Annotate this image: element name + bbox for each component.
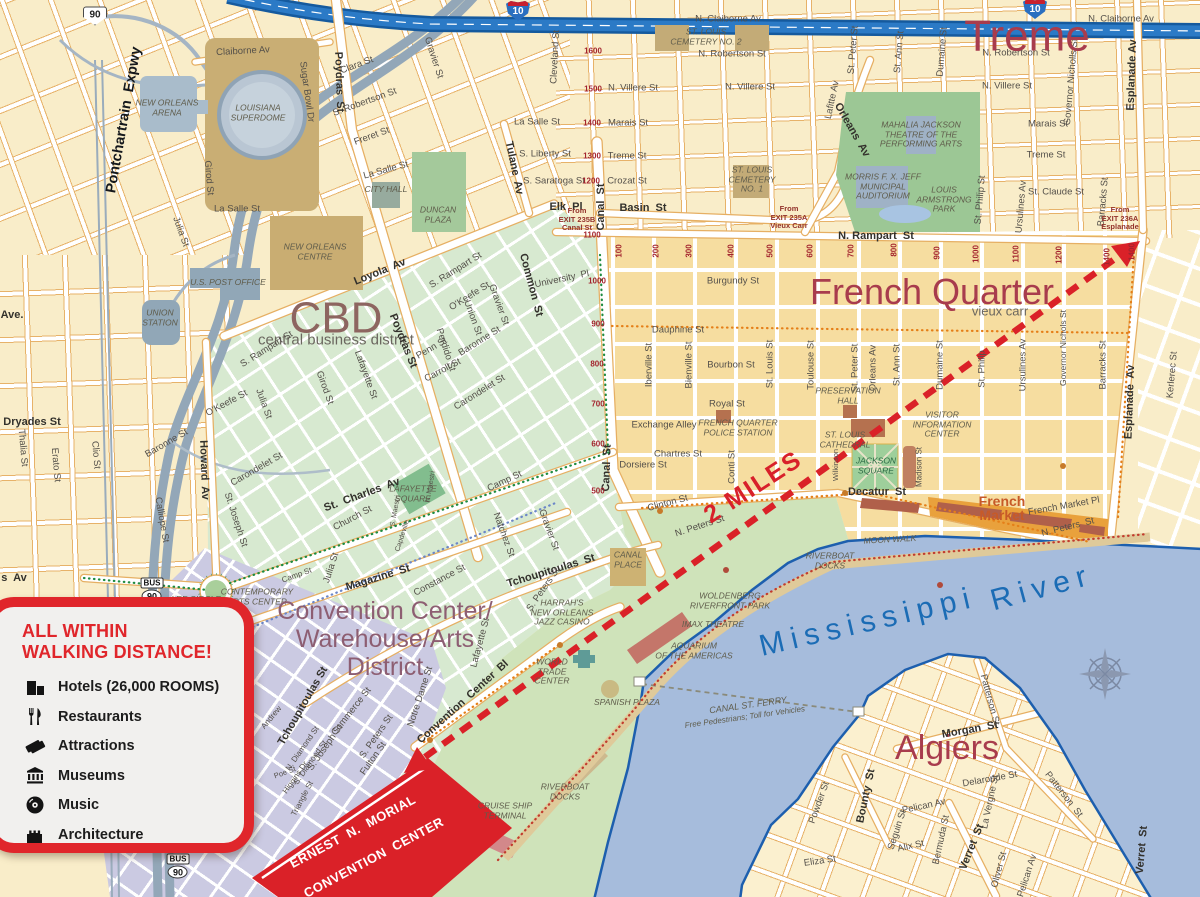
new-orleans-tourist-map: Pontchartrain ExpwyClaiborne AvNEW ORLEA… (0, 0, 1200, 897)
world-trade-center-block (573, 650, 595, 668)
legend-title-line1: ALL WITHIN (22, 621, 128, 641)
cemetery2-block (655, 25, 689, 51)
union-station-block (142, 300, 180, 345)
legend-item-label: Museums (58, 768, 125, 784)
legend-item-hotels-26-000-rooms: Hotels (26,000 ROOMS) (22, 672, 234, 702)
cemetery1-block (733, 165, 769, 198)
lafayette-square-block (392, 464, 445, 514)
legend-item-attractions: Attractions (22, 731, 234, 761)
police-station-block (716, 410, 731, 423)
city-hall-block (372, 182, 400, 208)
legend-item-architecture: Architecture (22, 820, 234, 850)
spanish-plaza-circle (601, 680, 619, 698)
legend-item-label: Restaurants (58, 709, 142, 725)
music-icon (22, 794, 48, 816)
ferry-dock-icon (853, 707, 864, 716)
legend-panel: ALL WITHIN WALKING DISTANCE! Hotels (26,… (0, 597, 254, 853)
mississippi-river-water (505, 536, 1200, 897)
legend-items: Hotels (26,000 ROOMS)RestaurantsAttracti… (22, 672, 234, 849)
architecture-icon (22, 824, 48, 846)
duncan-plaza-block (412, 152, 466, 232)
legend-item-restaurants: Restaurants (22, 702, 234, 732)
legend-title-line2: WALKING DISTANCE! (22, 642, 212, 662)
preservation-hall-block (843, 405, 857, 418)
interstate-10-highway (228, 0, 1200, 31)
legend-item-music: Music (22, 790, 234, 820)
canal-place-block (610, 548, 646, 586)
legend-item-label: Music (58, 797, 99, 813)
mahalia-theatre-block (906, 116, 936, 154)
legend-title: ALL WITHIN WALKING DISTANCE! (22, 621, 234, 662)
legend-item-museums: Museums (22, 761, 234, 791)
museums-icon (22, 765, 48, 787)
ferry-dock-icon (634, 677, 645, 686)
legend-item-label: Attractions (58, 738, 135, 754)
convention-center-building (252, 758, 512, 897)
legend-item-label: Hotels (26,000 ROOMS) (58, 679, 219, 695)
hotel-icon (22, 676, 48, 698)
post-office-block (190, 268, 260, 300)
auditorium-block (856, 166, 908, 208)
legend-item-label: Architecture (58, 827, 143, 843)
arena-block (140, 76, 197, 132)
new-orleans-centre-block (270, 216, 363, 290)
restaurants-icon (22, 706, 48, 728)
attractions-icon (22, 735, 48, 757)
visitor-center-block (903, 446, 916, 488)
